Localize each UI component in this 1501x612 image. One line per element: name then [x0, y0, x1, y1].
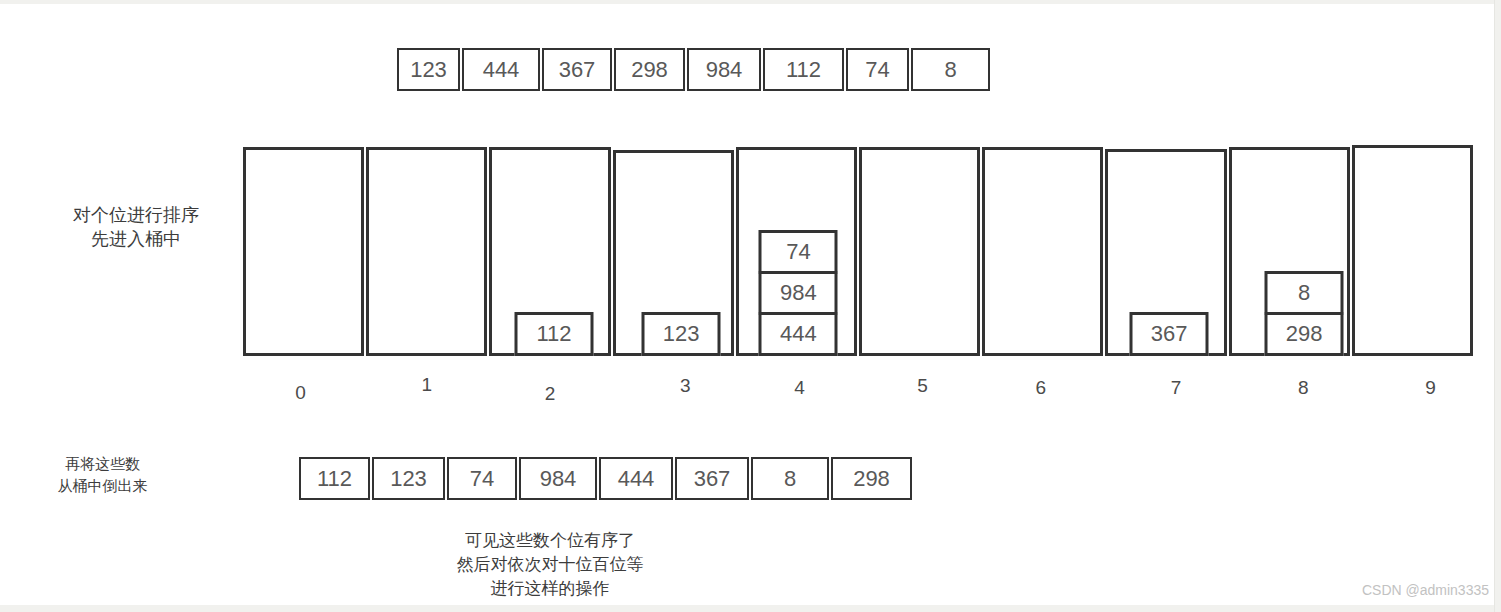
bucket-label-6: 6	[980, 377, 1101, 399]
bucket-4: 74 984 444	[736, 147, 857, 356]
bucket-6	[982, 147, 1103, 356]
array-cell: 367	[542, 48, 612, 91]
bucket-label-5: 5	[862, 375, 983, 397]
bucket-item: 444	[759, 312, 838, 356]
bucket-labels: 0 1 2 3 4 5 6 7 8 9	[243, 376, 1473, 398]
bucket-label-4: 4	[739, 377, 860, 399]
bucket-item: 298	[1265, 312, 1344, 356]
step2-label-line1: 再将这些数	[25, 453, 180, 475]
bucket-0	[243, 147, 364, 356]
bucket-5	[859, 147, 980, 356]
bucket-item: 984	[759, 271, 838, 315]
bucket-9	[1352, 145, 1473, 356]
array-cell: 298	[831, 457, 912, 500]
radix-sort-diagram: 123 444 367 298 984 112 74 8 对个位进行排序 先进入…	[0, 0, 1501, 612]
array-cell: 444	[599, 457, 673, 500]
bucket-3: 123	[613, 150, 734, 356]
bucket-8-stack: 8 298	[1265, 271, 1344, 356]
bucket-label-2: 2	[489, 383, 610, 405]
bucket-item: 8	[1265, 271, 1344, 315]
bucket-3-stack: 123	[642, 312, 721, 356]
caption-line1: 可见这些数个位有序了	[420, 529, 680, 553]
bucket-item: 74	[759, 230, 838, 274]
bucket-item: 112	[515, 312, 594, 356]
step1-label: 对个位进行排序 先进入桶中	[61, 203, 211, 251]
input-array: 123 444 367 298 984 112 74 8	[397, 48, 990, 91]
array-cell: 8	[911, 48, 990, 91]
bucket-4-stack: 74 984 444	[759, 230, 838, 356]
array-cell: 112	[763, 48, 844, 91]
array-cell: 123	[372, 457, 445, 500]
bucket-label-0: 0	[240, 382, 361, 404]
bottom-edge-strip	[0, 605, 1501, 612]
array-cell: 984	[687, 48, 761, 91]
array-cell: 298	[614, 48, 685, 91]
array-cell: 367	[675, 457, 749, 500]
array-cell: 123	[397, 48, 460, 91]
array-cell: 74	[447, 457, 517, 500]
array-cell: 444	[462, 48, 540, 91]
bucket-8: 8 298	[1229, 147, 1350, 356]
bucket-label-7: 7	[1115, 377, 1236, 399]
bucket-2: 112	[489, 147, 610, 356]
watermark: CSDN @admin3335	[1362, 582, 1489, 598]
array-cell: 8	[751, 457, 829, 500]
caption-line3: 进行这样的操作	[420, 577, 680, 601]
bucket-7-stack: 367	[1130, 312, 1209, 356]
step1-label-line2: 先进入桶中	[61, 227, 211, 251]
step1-label-line1: 对个位进行排序	[61, 203, 211, 227]
bucket-label-3: 3	[625, 375, 746, 397]
step2-label: 再将这些数 从桶中倒出来	[25, 453, 180, 497]
array-cell: 112	[299, 457, 370, 500]
bucket-item: 123	[642, 312, 721, 356]
bucket-7: 367	[1105, 149, 1226, 356]
step2-label-line2: 从桶中倒出来	[25, 475, 180, 497]
right-edge-strip	[1494, 0, 1501, 612]
top-edge-strip	[0, 0, 1501, 4]
array-cell: 984	[519, 457, 597, 500]
bucket-2-stack: 112	[515, 312, 594, 356]
bucket-item: 367	[1130, 312, 1209, 356]
caption-line2: 然后对依次对十位百位等	[420, 553, 680, 577]
bucket-row: 112 123 74 984 444 367 8 298	[243, 147, 1473, 356]
caption: 可见这些数个位有序了 然后对依次对十位百位等 进行这样的操作	[420, 529, 680, 601]
bucket-label-9: 9	[1370, 377, 1491, 399]
bucket-1	[366, 147, 487, 356]
array-cell: 74	[846, 48, 909, 91]
bucket-label-8: 8	[1243, 377, 1364, 399]
bucket-label-1: 1	[366, 374, 487, 396]
output-array: 112 123 74 984 444 367 8 298	[299, 457, 912, 500]
